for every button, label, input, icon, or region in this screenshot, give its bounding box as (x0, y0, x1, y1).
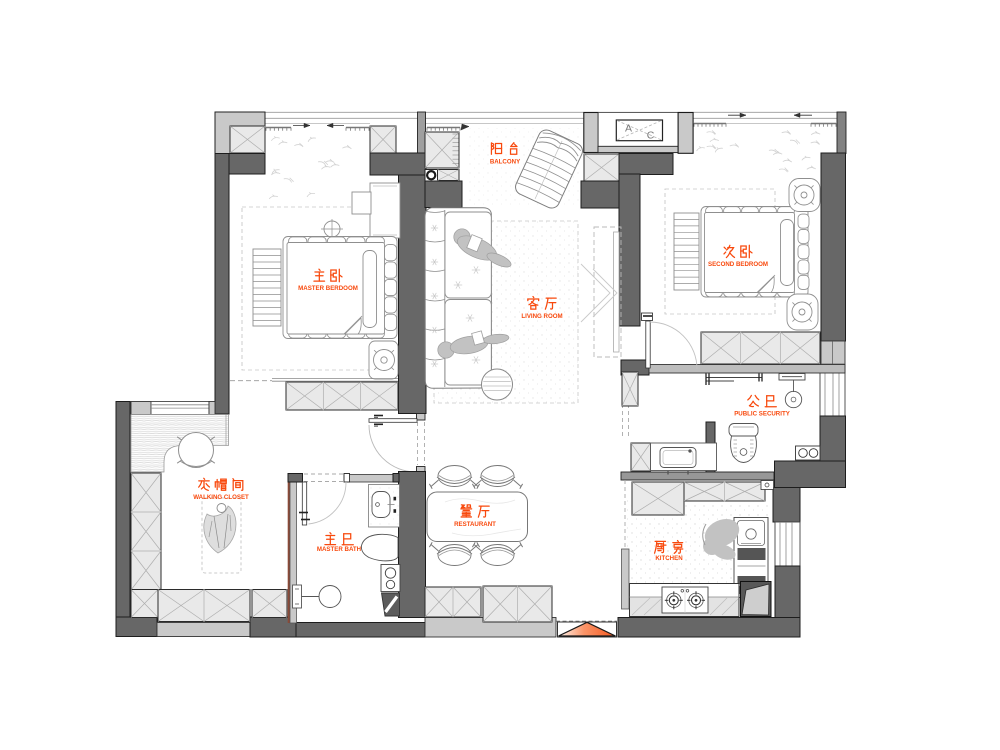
svg-text:PUBLIC SECURITY: PUBLIC SECURITY (734, 411, 790, 418)
svg-text:SECOND BEDROOM: SECOND BEDROOM (708, 261, 768, 268)
svg-text:MASTER BERDOOM: MASTER BERDOOM (298, 285, 358, 292)
svg-text:C: C (647, 130, 655, 142)
svg-text:MASTER BATH: MASTER BATH (317, 546, 362, 553)
svg-text:A: A (625, 123, 632, 135)
svg-text:BALCONY: BALCONY (490, 159, 520, 166)
svg-text:RESTAURANT: RESTAURANT (454, 521, 496, 528)
svg-text:LIVING ROOM: LIVING ROOM (521, 313, 562, 320)
svg-text:WALKING CLOSET: WALKING CLOSET (193, 494, 249, 501)
svg-text:KITCHEN: KITCHEN (655, 555, 683, 562)
